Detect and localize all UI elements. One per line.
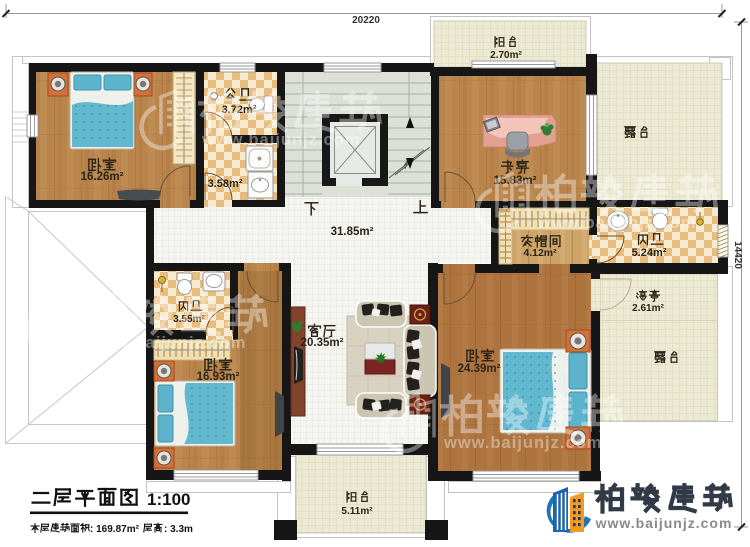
- svg-text:5.24m²: 5.24m²: [632, 247, 667, 259]
- svg-text:5.11m²: 5.11m²: [341, 506, 373, 517]
- svg-text:www.baijunjz.com: www.baijunjz.com: [595, 515, 733, 531]
- svg-text:20220: 20220: [352, 15, 380, 26]
- svg-text:4.12m²: 4.12m²: [523, 247, 557, 259]
- svg-text:www.baijunjz.com: www.baijunjz.com: [201, 131, 360, 149]
- svg-text:: 3.3m: : 3.3m: [164, 524, 193, 535]
- svg-text:24.39m²: 24.39m²: [458, 363, 501, 375]
- svg-text:www.baijunjz.com: www.baijunjz.com: [443, 434, 602, 452]
- svg-text:2.70m²: 2.70m²: [490, 50, 522, 61]
- svg-text:: 169.87m²: : 169.87m²: [90, 524, 140, 535]
- svg-text:16.93m²: 16.93m²: [197, 371, 240, 383]
- svg-text:2.61m²: 2.61m²: [632, 303, 664, 314]
- svg-text:1:100: 1:100: [147, 490, 190, 509]
- svg-text:www.baijunjz.com: www.baijunjz.com: [87, 334, 246, 352]
- svg-text:3.58m²: 3.58m²: [208, 178, 243, 190]
- svg-text:20.35m²: 20.35m²: [301, 337, 344, 349]
- svg-text:14420: 14420: [732, 241, 743, 269]
- svg-text:www.baijunjz.com: www.baijunjz.com: [537, 214, 696, 232]
- svg-text:31.85m²: 31.85m²: [331, 226, 374, 238]
- svg-text:16.26m²: 16.26m²: [81, 171, 124, 183]
